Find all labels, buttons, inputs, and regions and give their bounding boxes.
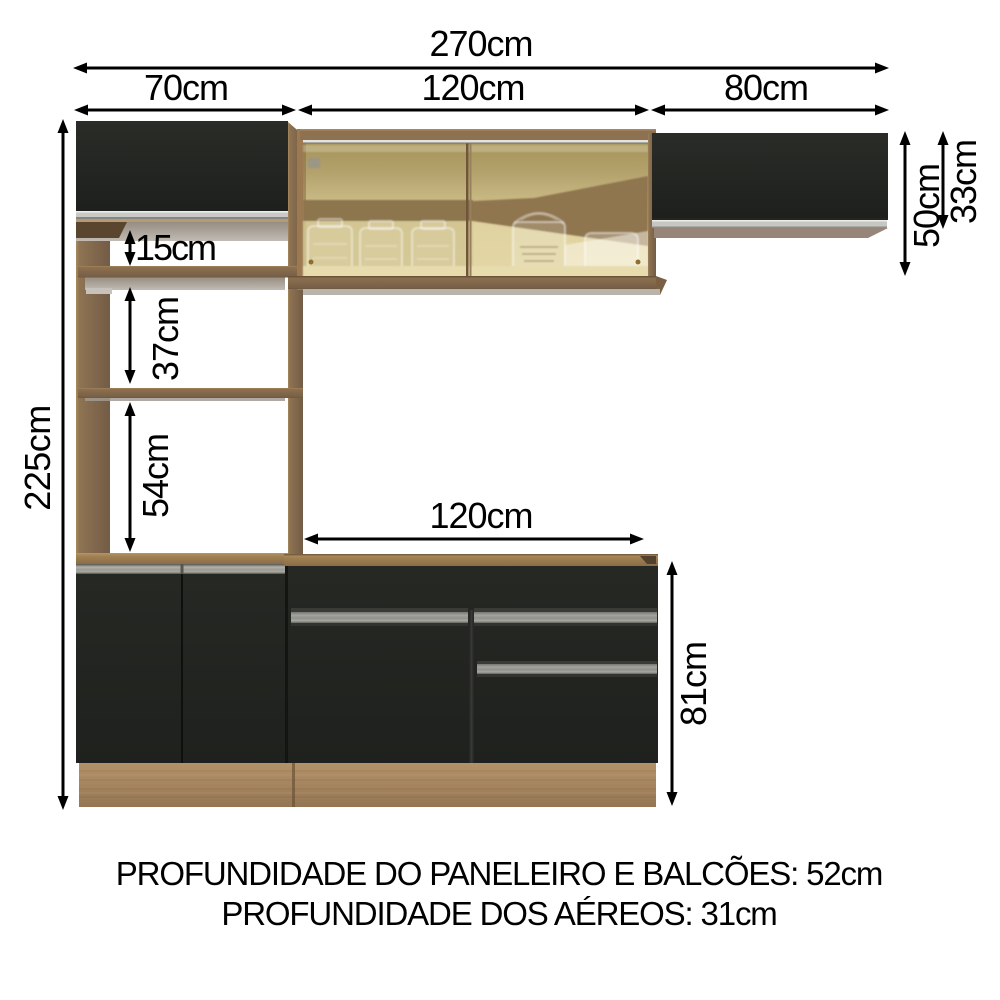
svg-text:33cm: 33cm	[943, 140, 984, 224]
svg-text:54cm: 54cm	[135, 434, 176, 518]
svg-text:50cm: 50cm	[906, 164, 947, 248]
svg-text:15cm: 15cm	[135, 227, 215, 268]
svg-text:PROFUNDIDADE DO PANELEIRO E BA: PROFUNDIDADE DO PANELEIRO E BALCÕES: 52c…	[116, 855, 882, 892]
svg-text:120cm: 120cm	[421, 67, 524, 108]
svg-text:225cm: 225cm	[17, 405, 58, 511]
svg-text:37cm: 37cm	[145, 297, 186, 381]
svg-text:270cm: 270cm	[429, 23, 532, 64]
svg-text:PROFUNDIDADE DOS AÉREOS: 31cm: PROFUNDIDADE DOS AÉREOS: 31cm	[221, 895, 776, 932]
svg-text:81cm: 81cm	[673, 642, 714, 726]
svg-text:120cm: 120cm	[429, 495, 532, 536]
svg-text:70cm: 70cm	[144, 67, 228, 108]
svg-text:80cm: 80cm	[724, 67, 808, 108]
